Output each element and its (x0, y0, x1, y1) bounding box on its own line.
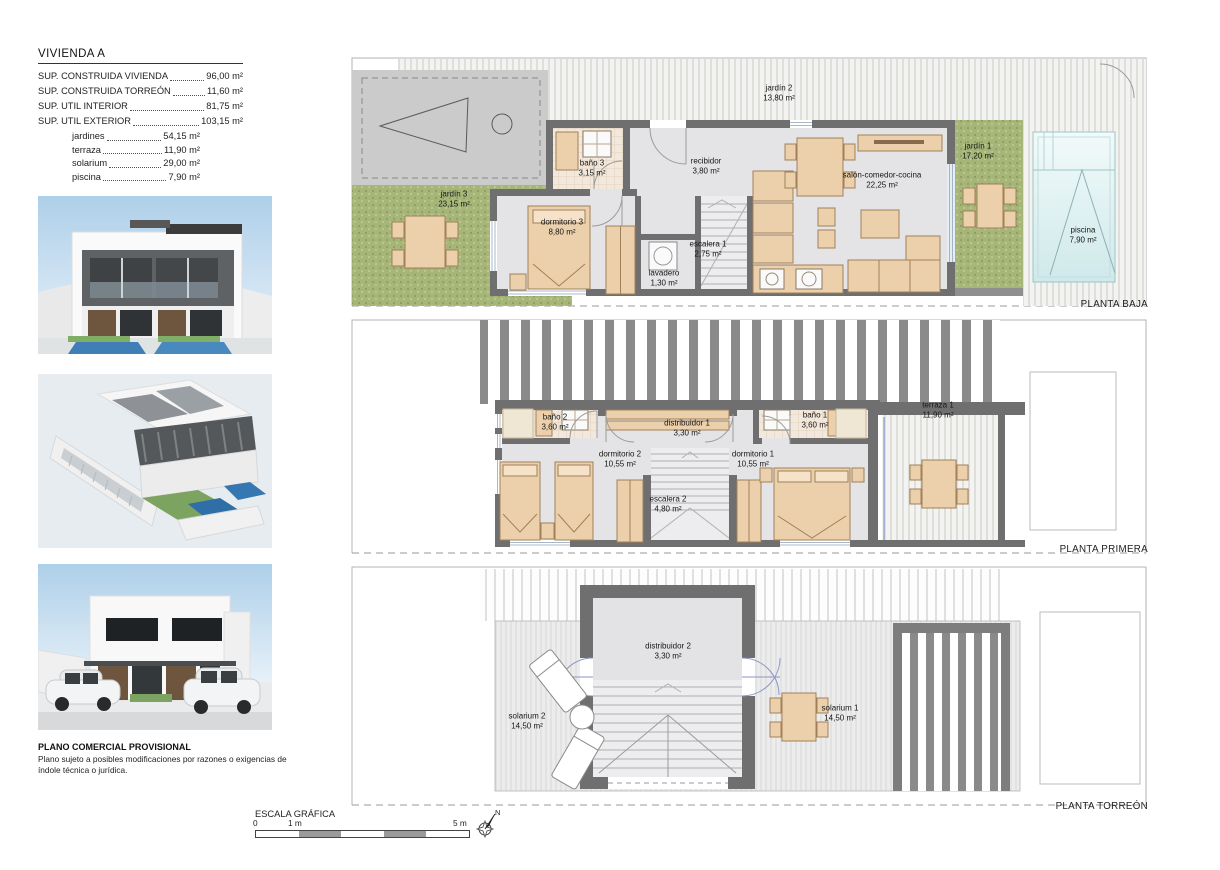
plan-title-primera: PLANTA PRIMERA (1060, 544, 1148, 555)
room-label-bano2: baño 23,60 m² (541, 412, 568, 431)
floor-plan-primera-drawing (350, 318, 1148, 556)
scale-tick-0: 0 (253, 818, 258, 828)
room-label-salon: salón-comedor-cocina22,25 m² (843, 170, 922, 189)
room-label-escalera1: escalera 12,75 m² (690, 239, 727, 258)
floor-plan-torreon: solarium 214,50 m² distribuidor 23,30 m²… (350, 565, 1148, 807)
legal-note: PLANO COMERCIAL PROVISIONAL Plano sujeto… (38, 742, 318, 776)
plan-title-torreon: PLANTA TORREÓN (1056, 801, 1148, 812)
room-label-dormitorio2: dormitorio 210,55 m² (599, 449, 641, 468)
room-label-bano1: baño 13,60 m² (801, 410, 828, 429)
plan-title-baja: PLANTA BAJA (1081, 299, 1148, 310)
room-label-dormitorio1: dormitorio 110,55 m² (732, 449, 774, 468)
plan-sheet: VIVIENDA A SUP. CONSTRUIDA VIVIENDA96,00… (0, 0, 1220, 870)
render-aerial-view (38, 374, 272, 548)
summary-subrows: jardines54,15 m² terraza11,90 m² solariu… (72, 130, 200, 184)
scale-tick-1m: 1 m (288, 818, 302, 828)
render-street-view (38, 564, 272, 730)
room-label-recibidor: recibidor3,80 m² (691, 156, 722, 175)
summary-row: SUP. CONSTRUIDA VIVIENDA96,00 m² (38, 69, 243, 84)
room-label-dormitorio3: dormitorio 38,80 m² (541, 217, 583, 236)
room-label-jardin2: jardín 213,80 m² (763, 83, 795, 102)
room-label-terraza1: terraza 111,90 m² (922, 400, 954, 419)
room-label-distribuidor1: distribuidor 13,30 m² (664, 418, 710, 437)
room-label-solarium1: solarium 114,50 m² (822, 703, 859, 722)
floor-plan-baja-drawing (350, 56, 1148, 308)
room-label-jardin1: jardín 117,20 m² (962, 141, 994, 160)
north-label: N (495, 808, 500, 817)
room-label-bano3: baño 33,15 m² (578, 158, 605, 177)
room-label-lavadero: lavadero1,30 m² (649, 268, 680, 287)
room-label-escalera2: escalera 24,80 m² (650, 494, 687, 513)
floor-plan-baja: jardín 213,80 m² jardín 323,15 m² baño 3… (350, 56, 1148, 308)
room-label-solarium2: solarium 214,50 m² (509, 711, 546, 730)
room-label-jardin3: jardín 323,15 m² (438, 189, 470, 208)
summary-row: SUP. CONSTRUIDA TORREÓN11,60 m² (38, 84, 243, 99)
summary-block: VIVIENDA A SUP. CONSTRUIDA VIVIENDA96,00… (38, 48, 243, 184)
legal-note-title: PLANO COMERCIAL PROVISIONAL (38, 742, 318, 752)
room-label-piscina: piscina7,90 m² (1069, 225, 1096, 244)
scale-tick-5m: 5 m (453, 818, 467, 828)
scale-bar (255, 830, 470, 838)
room-label-distribuidor2: distribuidor 23,30 m² (645, 641, 691, 660)
floor-plan-primera: baño 23,60 m² distribuidor 13,30 m² baño… (350, 318, 1148, 556)
floor-plan-torreon-drawing (350, 565, 1148, 807)
render-front-elevation (38, 196, 272, 354)
summary-row: SUP. UTIL EXTERIOR103,15 m² (38, 114, 243, 129)
sheet-title: VIVIENDA A (38, 48, 243, 64)
summary-row: SUP. UTIL INTERIOR81,75 m² (38, 99, 243, 114)
